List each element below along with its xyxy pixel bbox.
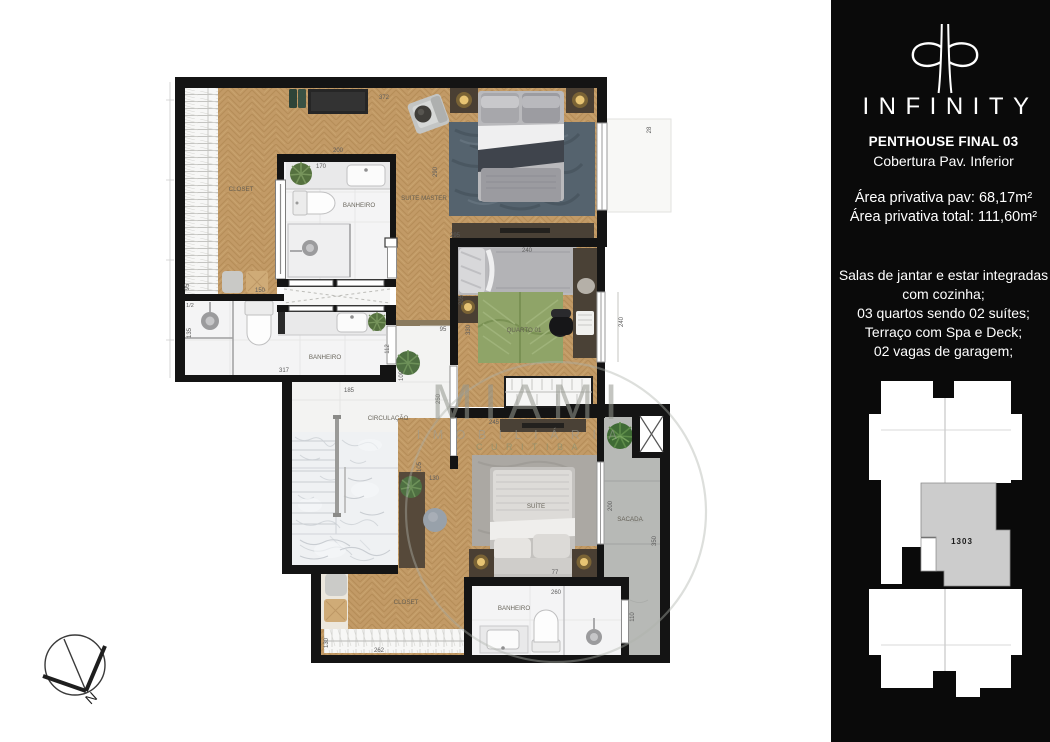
svg-text:BANHEIRO: BANHEIRO [309,354,342,361]
svg-text:262: 262 [374,648,385,654]
svg-text:350: 350 [652,535,658,546]
svg-text:1303: 1303 [951,537,973,546]
svg-text:CLOSET: CLOSET [229,186,254,193]
svg-text:CIRCULAÇÃO: CIRCULAÇÃO [368,415,409,422]
svg-text:95: 95 [440,327,447,333]
svg-text:CURITIBA: CURITIBA [476,442,586,452]
svg-text:77: 77 [552,570,559,576]
svg-text:372: 372 [379,95,390,101]
svg-text:BANHEIRO: BANHEIRO [343,202,376,209]
svg-text:QUARTO 01: QUARTO 01 [507,327,542,334]
svg-text:330: 330 [466,324,472,335]
svg-text:110: 110 [630,612,636,622]
svg-text:28: 28 [647,126,653,133]
svg-text:95: 95 [185,283,191,290]
svg-text:135: 135 [187,327,193,338]
svg-text:170: 170 [316,164,327,170]
svg-text:BANHEIRO: BANHEIRO [498,605,531,612]
svg-text:SUÍTE: SUÍTE [527,503,545,510]
svg-text:130: 130 [324,637,330,648]
svg-text:SUITE MASTER: SUITE MASTER [401,195,447,202]
svg-text:205: 205 [459,294,465,305]
svg-text:150: 150 [255,288,266,294]
svg-text:295: 295 [450,233,461,239]
svg-text:200: 200 [333,148,344,154]
svg-text:1/2: 1/2 [186,303,194,309]
svg-text:112: 112 [385,344,391,354]
svg-text:185: 185 [344,388,355,394]
svg-text:CLOSET: CLOSET [394,599,419,606]
svg-text:260: 260 [551,590,562,596]
svg-text:240: 240 [522,248,533,254]
svg-text:105: 105 [417,461,423,472]
svg-text:240: 240 [619,316,625,327]
svg-text:200: 200 [608,500,614,511]
svg-text:290: 290 [433,166,439,177]
svg-text:SACADA: SACADA [617,516,643,523]
svg-text:100: 100 [399,370,405,381]
svg-text:IMOBILIÁRIA: IMOBILIÁRIA [417,427,630,442]
svg-text:317: 317 [279,368,290,374]
svg-text:MIAMI: MIAMI [432,374,629,430]
svg-text:130: 130 [429,476,440,482]
